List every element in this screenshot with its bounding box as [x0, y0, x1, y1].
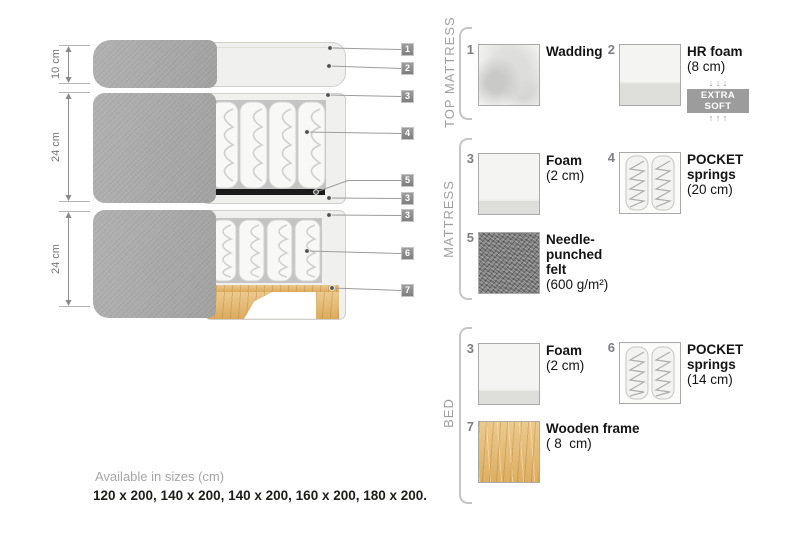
callout-tag-3b: 3	[401, 192, 414, 205]
callout-tag-1: 1	[401, 43, 414, 56]
callout-tag-7: 7	[401, 284, 414, 297]
callout-tag-2: 2	[401, 62, 414, 75]
callout-tag-5: 5	[401, 174, 414, 187]
callout-tag-3a: 3	[401, 90, 414, 103]
callout-tag-4: 4	[401, 127, 414, 140]
callout-tag-6: 6	[401, 247, 414, 260]
infographic-canvas: 10 cm 24 cm 24 cm 1 2 3 4 5 3 3 6 7 TOP …	[0, 0, 800, 533]
annotation-lines	[0, 0, 800, 533]
callout-tag-3c: 3	[401, 209, 414, 222]
